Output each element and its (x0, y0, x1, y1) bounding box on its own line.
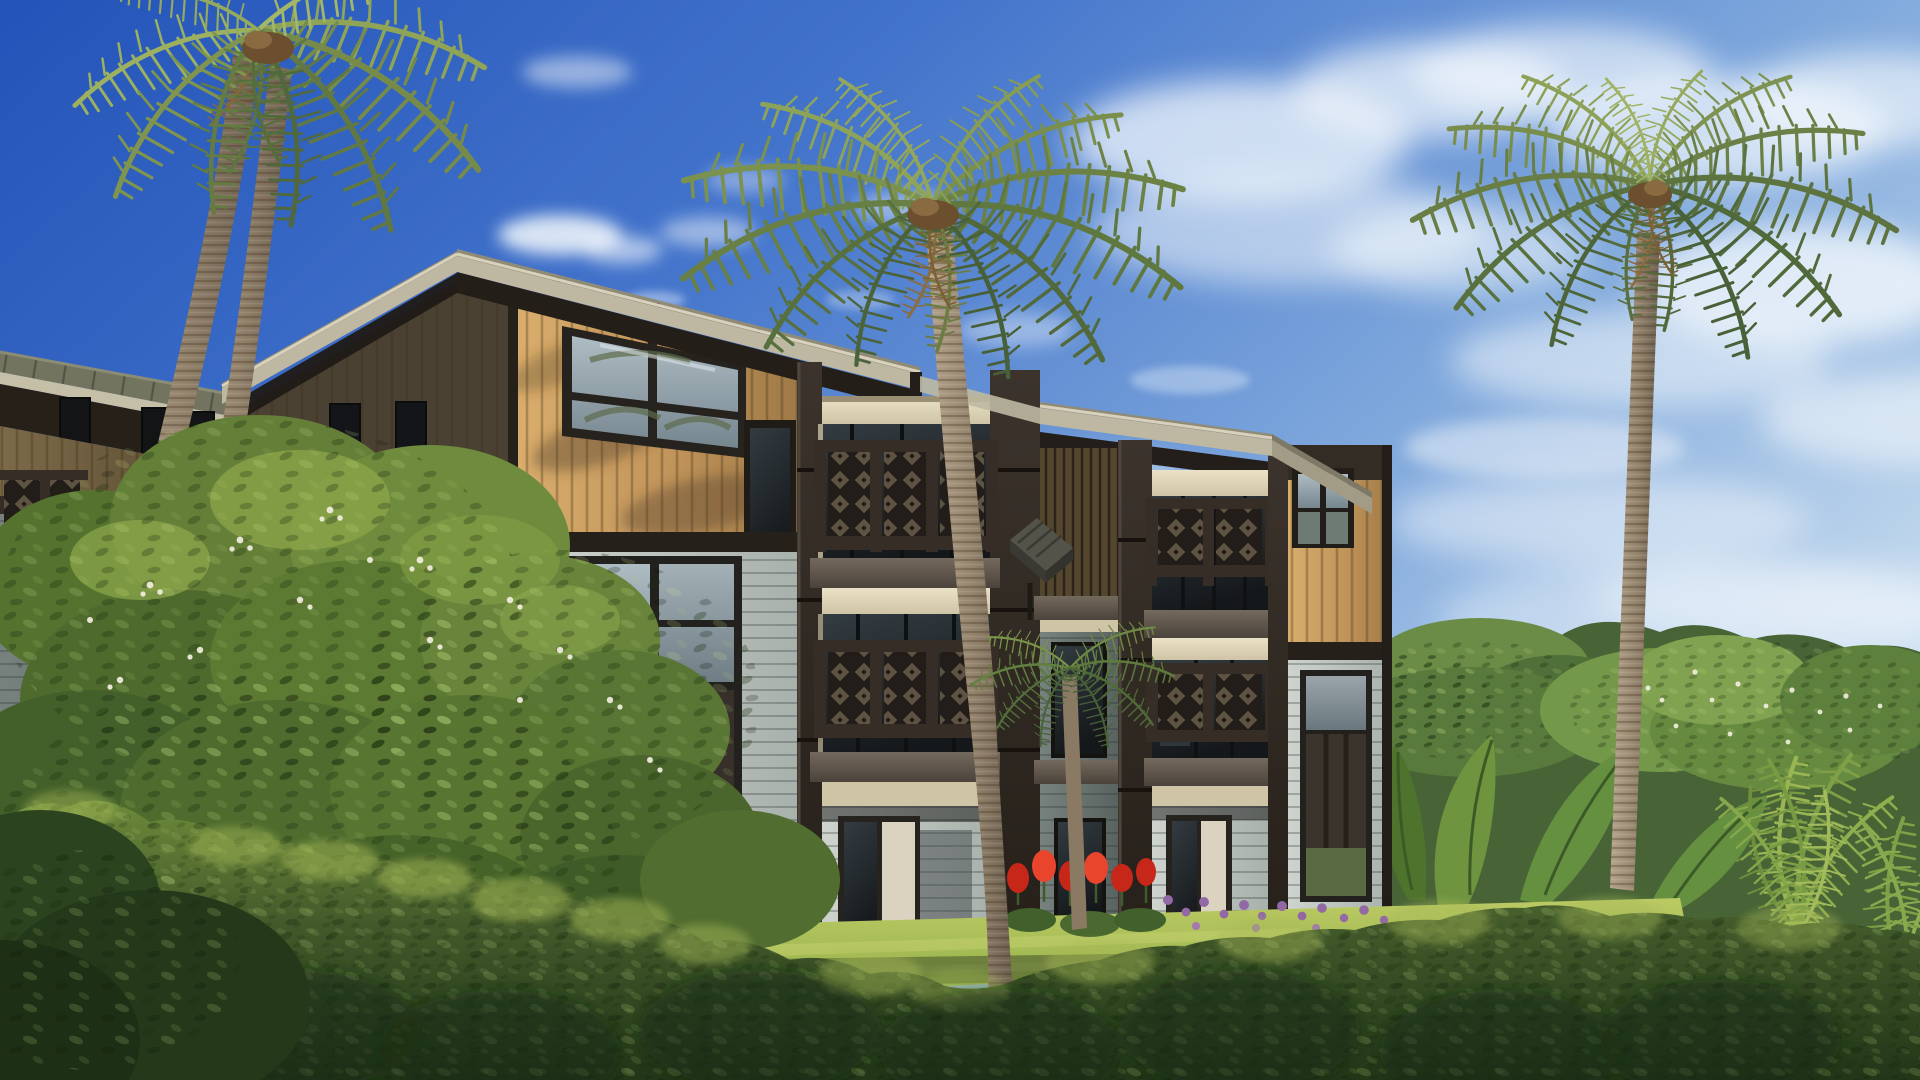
scene (0, 0, 1920, 1080)
balcony-3f-right (1146, 470, 1276, 612)
rendering-canvas (0, 0, 1920, 1080)
corner-tall-window (1300, 670, 1372, 902)
